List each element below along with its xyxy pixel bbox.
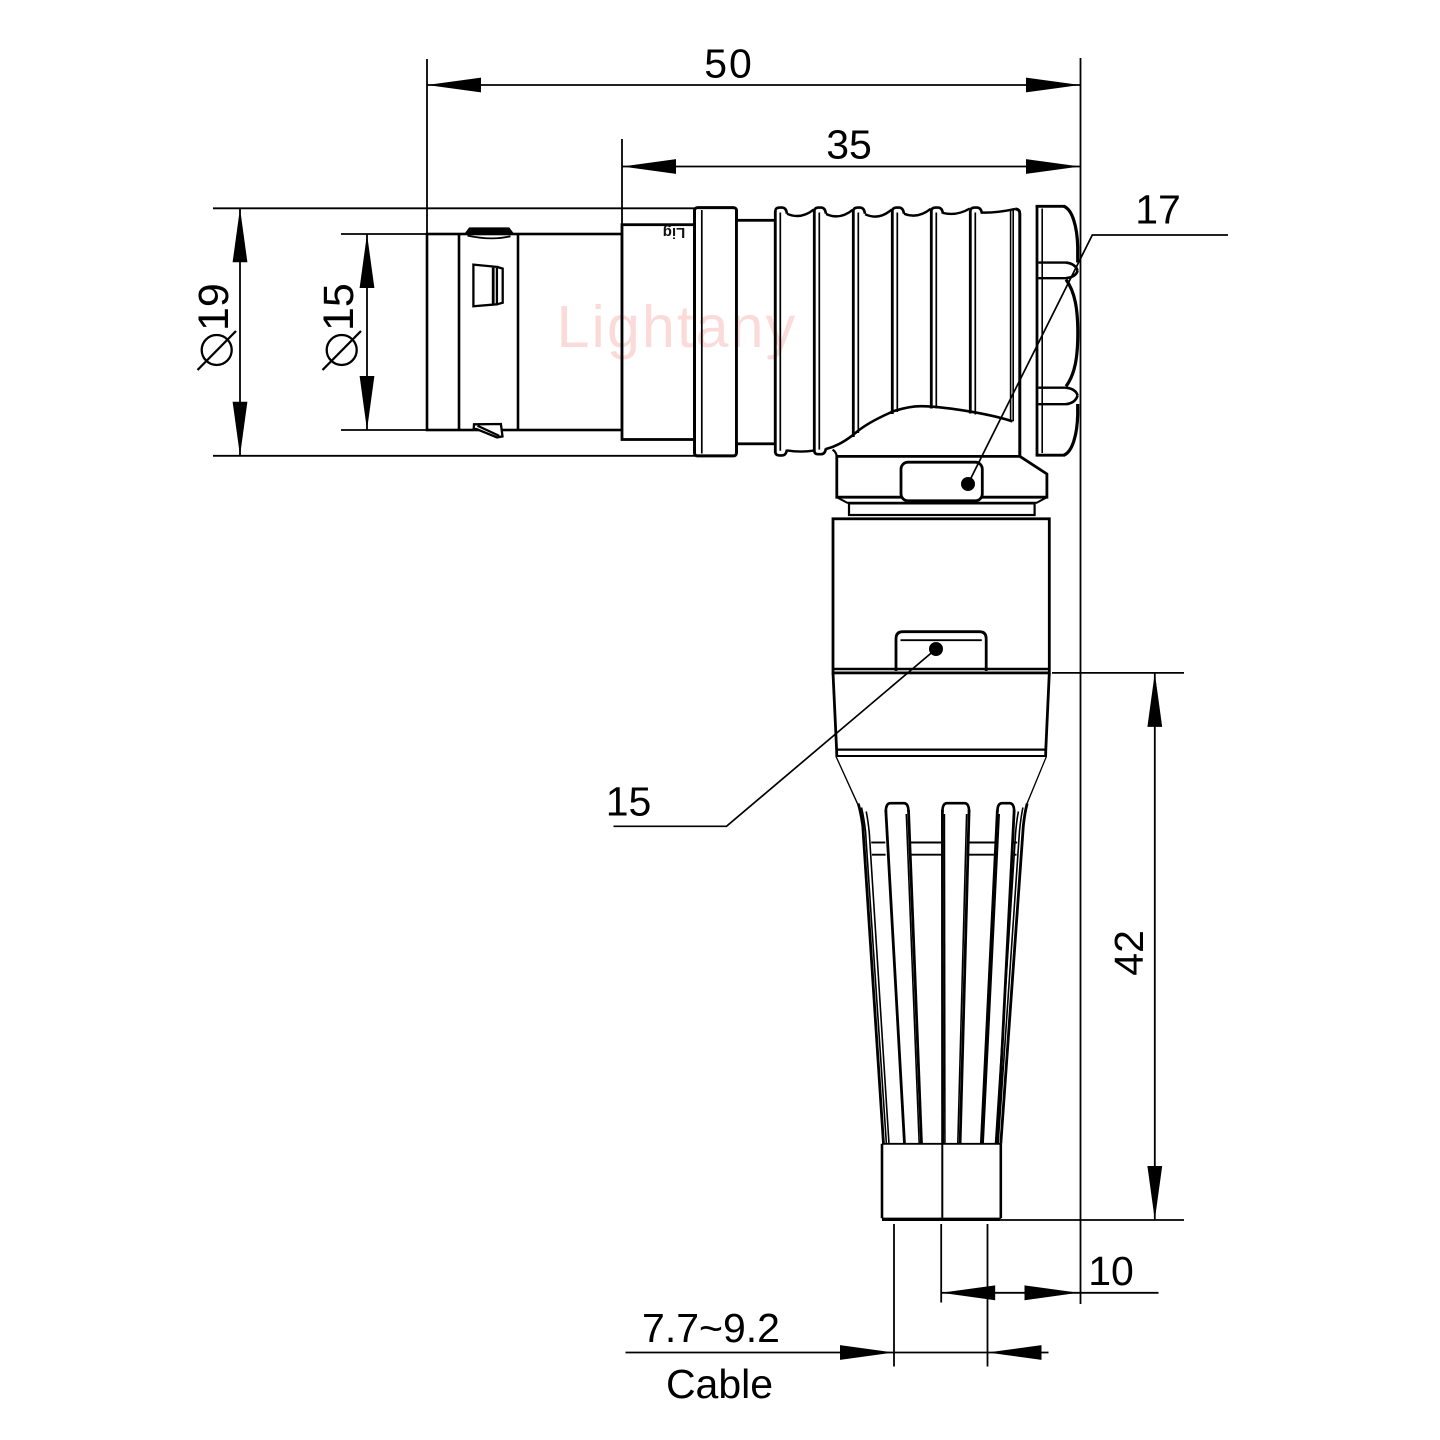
svg-text:10: 10 bbox=[1088, 1248, 1134, 1294]
svg-text:15: 15 bbox=[606, 778, 652, 824]
svg-text:Lig: Lig bbox=[663, 224, 686, 241]
svg-text:42: 42 bbox=[1106, 930, 1152, 976]
svg-text:15: 15 bbox=[315, 283, 363, 331]
svg-text:17: 17 bbox=[1135, 186, 1181, 232]
svg-text:35: 35 bbox=[826, 122, 872, 168]
svg-text:19: 19 bbox=[190, 283, 238, 331]
svg-text:50: 50 bbox=[704, 41, 754, 87]
svg-text:7.7~9.2: 7.7~9.2 bbox=[642, 1305, 780, 1351]
svg-text:Cable: Cable bbox=[666, 1361, 773, 1407]
svg-text:Lightany: Lightany bbox=[557, 294, 798, 360]
